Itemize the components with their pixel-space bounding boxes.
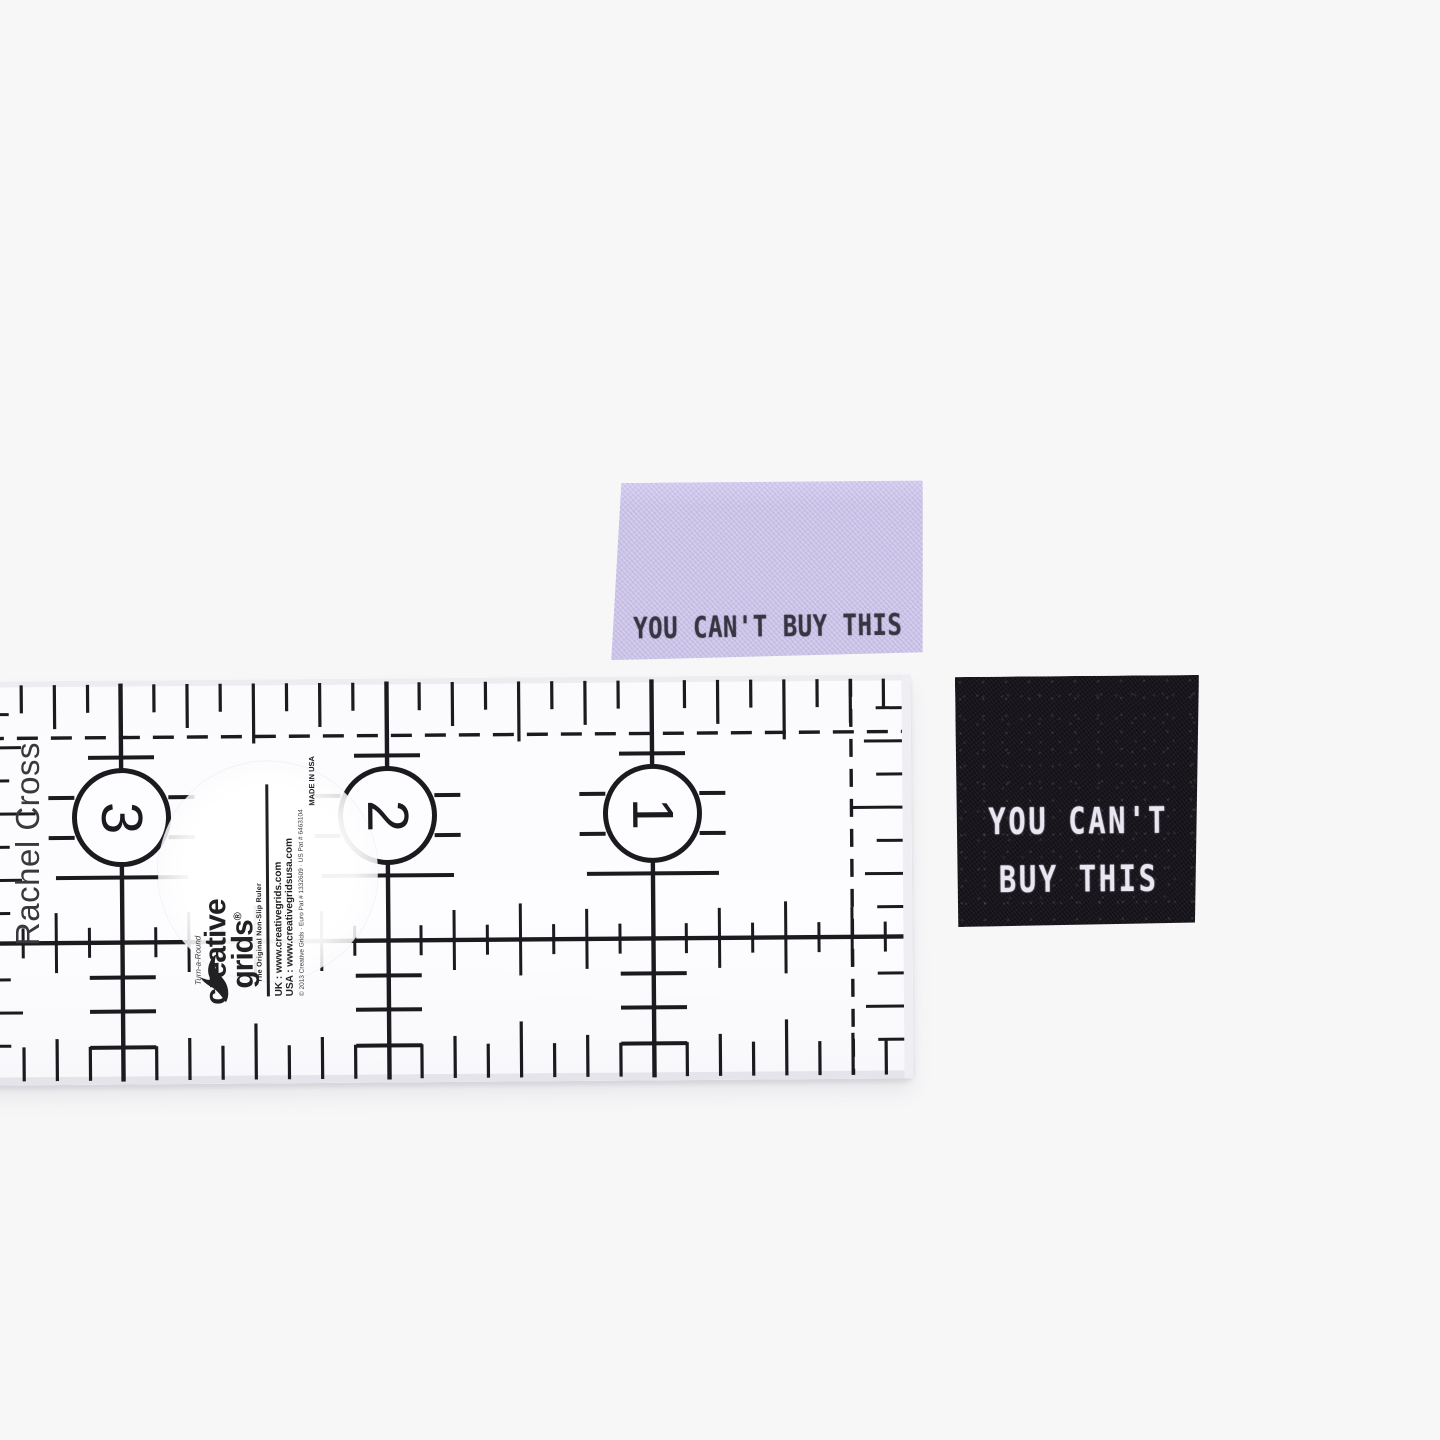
purple-woven-label: YOU CAN'T BUY THIS — [609, 479, 925, 660]
ruler-number-2: 2 — [347, 775, 428, 856]
brand-made-in: MADE IN USA — [307, 756, 316, 806]
ruler-markings — [0, 674, 914, 1085]
brand-fine-print: © 2013 Creative Grids · Euro Pat # 13326… — [296, 744, 305, 996]
goose-logo-icon — [198, 953, 236, 1005]
black-woven-label: YOU CAN'T BUY THIS — [955, 675, 1201, 927]
brand-tagline: The Original Non-Slip Ruler — [255, 744, 264, 982]
creative-grids-logo: Turn-a-Round creative grids® The Origina… — [192, 744, 344, 1005]
quilting-ruler: Turn-a-Round creative grids® The Origina… — [0, 674, 914, 1085]
brand-divider — [265, 784, 269, 996]
black-label-line2: BUY THIS — [956, 842, 1201, 917]
registered-mark: ® — [232, 912, 244, 920]
brand-url-usa: USA : www.creativegridsusa.com — [282, 744, 295, 996]
ruler-number-1: 1 — [612, 773, 693, 854]
photo-credit: Rachel Cross — [6, 694, 50, 994]
product-photo-stage: Turn-a-Round creative grids® The Origina… — [0, 0, 1440, 1440]
photo-credit-text: Rachel Cross — [9, 742, 47, 946]
ruler-number-3: 3 — [81, 777, 162, 858]
brand-row: creative grids® — [201, 745, 257, 1005]
purple-label-text: YOU CAN'T BUY THIS — [611, 608, 925, 647]
